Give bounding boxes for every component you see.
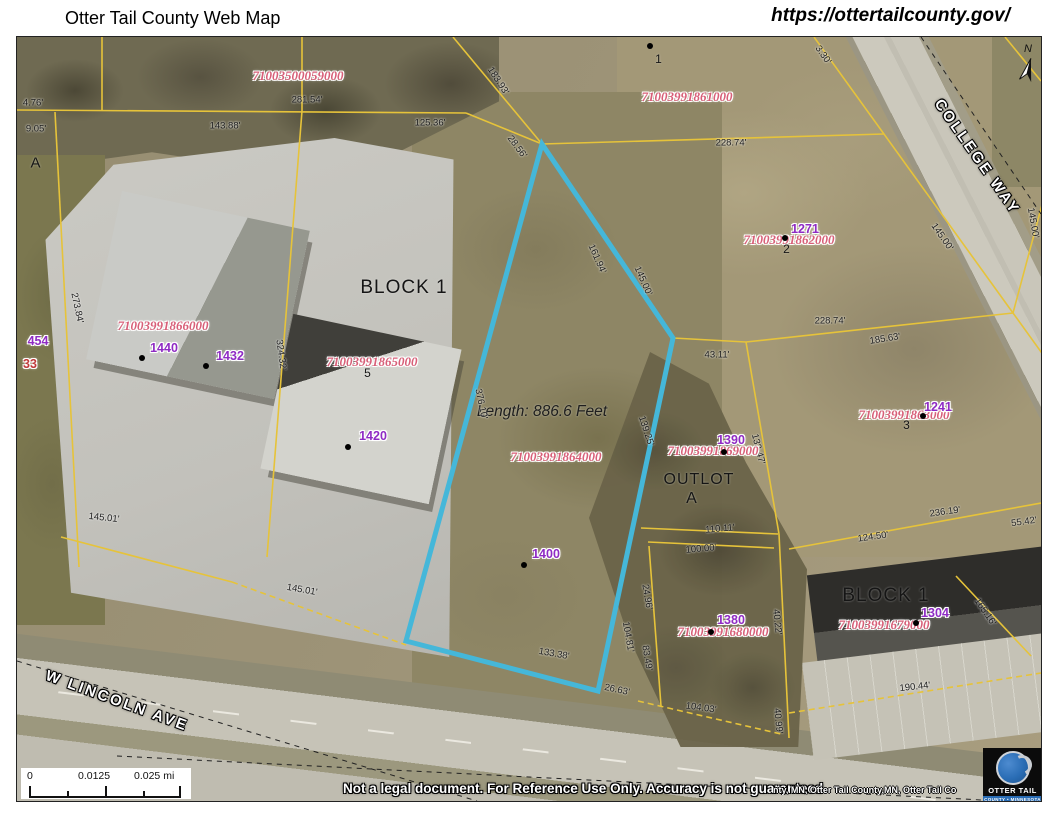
parcel-id-label: 71003991679000 (839, 617, 930, 633)
lot-label: BLOCK 1 (360, 277, 447, 299)
parcel-id-label: 71003500059000 (253, 68, 344, 84)
address-point-marker (913, 620, 919, 626)
dimension-label: 145.01' (88, 511, 120, 525)
dimension-label: 145.00' (929, 221, 956, 253)
dimension-label: 165.16' (972, 596, 999, 628)
dimension-label: 161.94' (586, 243, 609, 276)
dimension-label: 104.81' (620, 621, 636, 653)
lot-label: 2 (783, 242, 791, 256)
parcel-linework (17, 37, 1041, 801)
lot-label: 1 (655, 52, 663, 66)
dimension-label: 281.54' (292, 95, 323, 106)
dimension-label: 133.47' (749, 433, 767, 466)
scale-label-mid: 0.0125 (78, 770, 110, 782)
aerial-field-center (412, 92, 722, 722)
street-label: COLLEGE WAY (931, 96, 1023, 218)
address-point-marker (647, 43, 653, 49)
parcel-id-label: 71003991861000 (642, 89, 733, 105)
lot-label: 5 (364, 366, 372, 380)
parcel-lines-dashed (232, 582, 1041, 734)
map-label-layer: Length: 886.6 Feet 4.76'9.05'281.54'143.… (17, 37, 1041, 801)
parcel-id-label: 71003991865000 (327, 354, 418, 370)
address-point-marker (721, 449, 727, 455)
dimension-label: 228.74' (716, 138, 747, 149)
map-canvas[interactable]: Length: 886.6 Feet 4.76'9.05'281.54'143.… (16, 36, 1042, 802)
address-label: 1241 (924, 400, 952, 414)
dimension-label: 228.74' (815, 316, 846, 327)
address-point-marker (345, 444, 351, 450)
address-label: 1432 (216, 349, 244, 363)
dimension-label: 43.11' (705, 350, 730, 361)
dimension-label: 145.00' (632, 265, 655, 298)
aerial-parking-lot (37, 122, 462, 657)
address-point-marker (139, 355, 145, 361)
dimension-label: 125.36' (415, 118, 446, 129)
dimension-label: 185.63' (869, 331, 901, 347)
parcel-id-label: 71003991864000 (511, 449, 602, 465)
aerial-road-college-way (837, 36, 1042, 448)
header-bar: Otter Tail County Web Map https://ottert… (0, 0, 1056, 36)
scale-tick (105, 786, 107, 796)
address-label: 1271 (791, 222, 819, 236)
dimension-label: 145.00' (1025, 207, 1041, 239)
aerial-building-block1-south (807, 543, 1042, 674)
dimension-label: 236.19' (929, 504, 961, 519)
scale-tick (143, 791, 145, 796)
dimension-label: 55.42' (1011, 515, 1038, 529)
highlighted-parcel-outline (406, 144, 673, 691)
dimension-label: 273.84' (68, 292, 85, 324)
aerial-trees-northwest (17, 37, 499, 171)
disclaimer-text: Not a legal document. For Reference Use … (343, 781, 823, 796)
address-label: 1400 (532, 547, 560, 561)
globe-icon (996, 751, 1030, 785)
address-point-marker (920, 413, 926, 419)
address-point-marker (708, 629, 714, 635)
dimension-label: 133.38' (538, 646, 570, 662)
aerial-brush-outlot (589, 352, 807, 747)
north-label: N (1015, 43, 1041, 55)
dimension-label: 324.32' (273, 339, 288, 371)
north-arrow-icon (1015, 55, 1041, 85)
aerial-base (17, 37, 1041, 801)
dimension-label: 24.96' (639, 583, 654, 610)
aerial-road-lincoln-ave (16, 630, 1042, 802)
lot-label: A (686, 490, 698, 508)
address-point-marker (782, 235, 788, 241)
parcel-id-label: 71003991680000 (678, 624, 769, 640)
address-point-marker (203, 363, 209, 369)
parcel-id-label: 71003991869000 (668, 443, 759, 459)
section-lines (17, 37, 1041, 801)
page-title: Otter Tail County Web Map (65, 8, 280, 29)
aerial-building-1440 (86, 191, 310, 399)
measurement-label: Length: 886.6 Feet (477, 403, 607, 421)
dimension-label: 143.88' (210, 121, 241, 132)
dimension-label: 9.05' (26, 124, 46, 135)
scale-label-zero: 0 (27, 770, 33, 782)
attribution-text: nty, MN, Otter Tail County,MN, Otter Tai… (773, 785, 985, 795)
dimension-label: 40.99' (771, 708, 785, 735)
dimension-label: 40.22' (770, 609, 784, 636)
address-label: 1304 (921, 606, 949, 620)
lot-label: BLOCK 1 (842, 585, 929, 607)
aerial-building-1420 (260, 314, 461, 504)
lot-label: A (30, 155, 41, 172)
dimension-label: 4.76' (23, 98, 43, 109)
address-point-marker (521, 562, 527, 568)
aerial-parking-southeast (802, 632, 1042, 760)
dimension-label: 100.00' (685, 542, 717, 556)
scale-tick (29, 786, 31, 796)
north-arrow: N (1015, 43, 1041, 91)
parcel-lines (17, 37, 1041, 738)
parcel-id-label: 71003991862000 (744, 232, 835, 248)
scale-tick (179, 786, 181, 796)
address-label: 1380 (717, 613, 745, 627)
aerial-grass-west (17, 155, 105, 625)
logo-subtitle: COUNTY • MINNESOTA (983, 796, 1042, 801)
parcel-id-label: 71003991866000 (118, 318, 209, 334)
logo-title: OTTER TAIL (983, 786, 1042, 795)
county-logo: OTTER TAIL COUNTY • MINNESOTA (983, 748, 1042, 801)
dimension-label: 110.11' (705, 522, 735, 536)
dimension-label: 3.30' (813, 44, 834, 67)
dimension-label: 124.50' (857, 529, 889, 544)
dimension-label: 83.49' (639, 644, 654, 671)
lot-label: 3 (903, 418, 911, 432)
address-label: 1390 (717, 433, 745, 447)
dimension-label: 104.03' (685, 700, 717, 715)
site-url: https://ottertailcounty.gov/ (771, 5, 1010, 27)
scale-bar: 0 0.0125 0.025 mi (21, 768, 191, 799)
scale-ruler (29, 785, 181, 798)
dimension-label: 26.63' (603, 682, 630, 698)
aerial-field-east (617, 37, 1041, 557)
street-label: W LINCOLN AVE (43, 667, 191, 735)
dimension-label: 376.10' (472, 388, 489, 420)
aerial-grass-northeast (992, 37, 1041, 187)
dimension-label: 139.25' (636, 415, 656, 448)
dimension-label: 145.01' (286, 582, 318, 598)
dimension-label: 190.44' (899, 680, 931, 694)
address-label: 454 (28, 334, 49, 348)
address-label: 1420 (359, 429, 387, 443)
scale-tick (67, 791, 69, 796)
address-label: 33 (23, 357, 37, 371)
address-label: 1440 (150, 341, 178, 355)
scale-label-max: 0.025 mi (134, 770, 174, 782)
dimension-label: 183.93' (485, 65, 511, 97)
lot-label: OUTLOT (664, 471, 735, 489)
parcel-id-label: 71003991863000 (859, 407, 950, 423)
dimension-label: 28.56' (505, 133, 529, 160)
